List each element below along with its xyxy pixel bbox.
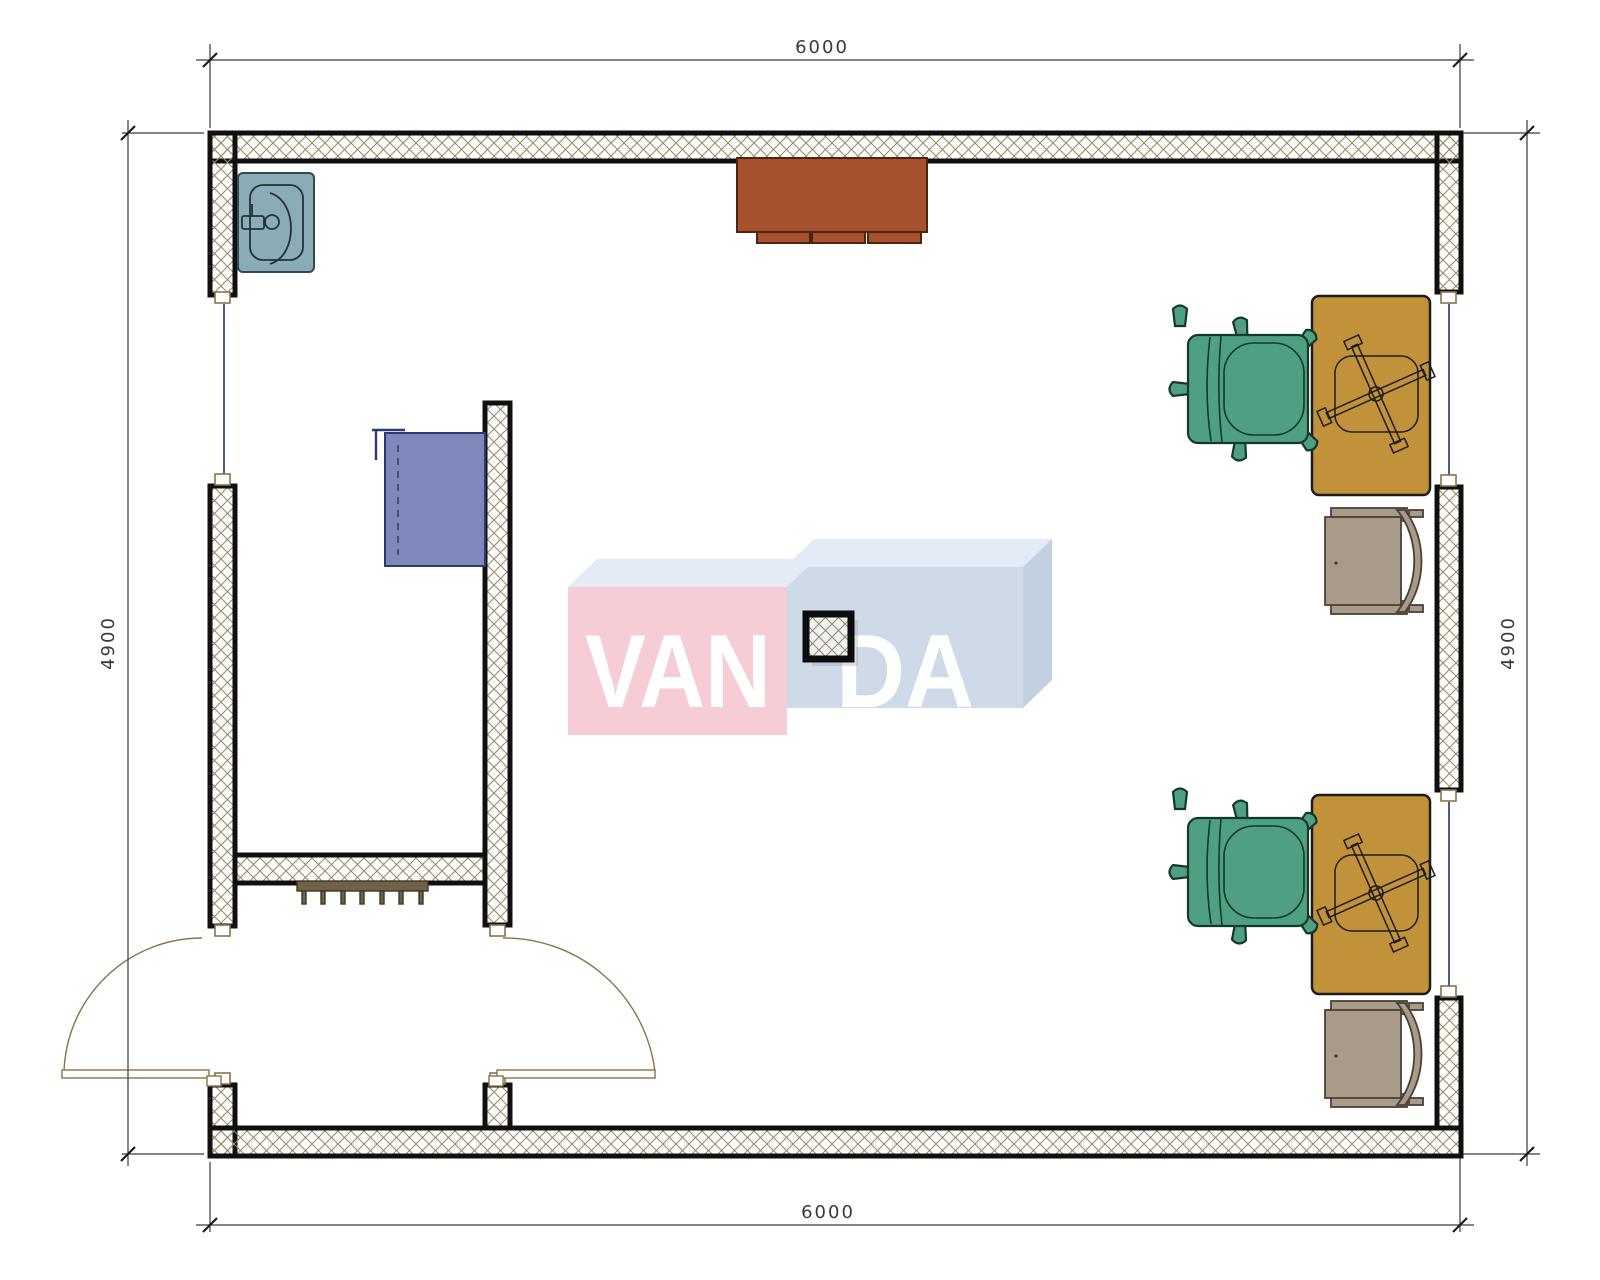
dimension-left: 4900 [98, 120, 204, 1166]
door-swing-arc-right [503, 938, 655, 1072]
wall-right-upper [1437, 133, 1461, 292]
window-cap [215, 925, 230, 936]
partition-wall-stub [485, 1085, 510, 1128]
dimension-top: 6000 [196, 37, 1474, 128]
watermark-text-left: VAN [585, 614, 771, 730]
dimension-bottom-label: 6000 [801, 1202, 855, 1223]
window-cap [490, 925, 505, 936]
door-leaf-right [497, 1070, 655, 1078]
radiator [297, 881, 428, 904]
dimension-right: 4900 [1463, 120, 1540, 1166]
wall-right-lower [1437, 998, 1461, 1128]
window-cap [215, 292, 230, 303]
partition-wall-vertical [485, 403, 510, 925]
armchair-grey-middle [1325, 508, 1423, 614]
window-cap [1441, 292, 1456, 303]
wall-right-middle [1437, 487, 1461, 790]
dimension-right-label: 4900 [1498, 616, 1519, 670]
office-chair-green-bottom [1170, 789, 1320, 944]
watermark-blue-box-top [785, 539, 1052, 567]
armchair-grey-bottom [1325, 1001, 1423, 1107]
desk-bottom-right [1295, 795, 1456, 994]
wall-left-middle [210, 486, 235, 926]
desk-top-right [1295, 296, 1456, 495]
dimension-top-label: 6000 [795, 37, 849, 58]
office-chair-green-top [1170, 306, 1320, 461]
window-cap [1441, 790, 1456, 801]
door-leaf-left [62, 1070, 209, 1078]
window-cap [1441, 986, 1456, 997]
sink [238, 173, 314, 272]
structural-column [806, 614, 858, 666]
door-hinge-left [207, 1076, 221, 1086]
entrance-double-door [62, 938, 655, 1086]
door-hinge-right [489, 1076, 503, 1086]
door-swing-arc-left [64, 938, 202, 1072]
wall-top [210, 133, 1461, 161]
wall-left-upper [210, 133, 235, 295]
window-cap [215, 474, 230, 485]
watermark-blue-box-side [1023, 539, 1052, 708]
window-cap [1441, 475, 1456, 486]
brown-cabinet [737, 158, 927, 243]
watermark-pink-box-top [568, 559, 816, 587]
dimension-left-label: 4900 [98, 616, 119, 670]
floor-plan-canvas: VAN DA [0, 0, 1600, 1280]
dimension-bottom: 6000 [196, 1158, 1474, 1232]
partition-wall-horizontal [235, 855, 485, 883]
wall-bottom [210, 1128, 1461, 1156]
blue-cabinet [372, 430, 485, 566]
floor-plan-drawing: VAN DA [0, 0, 1600, 1280]
